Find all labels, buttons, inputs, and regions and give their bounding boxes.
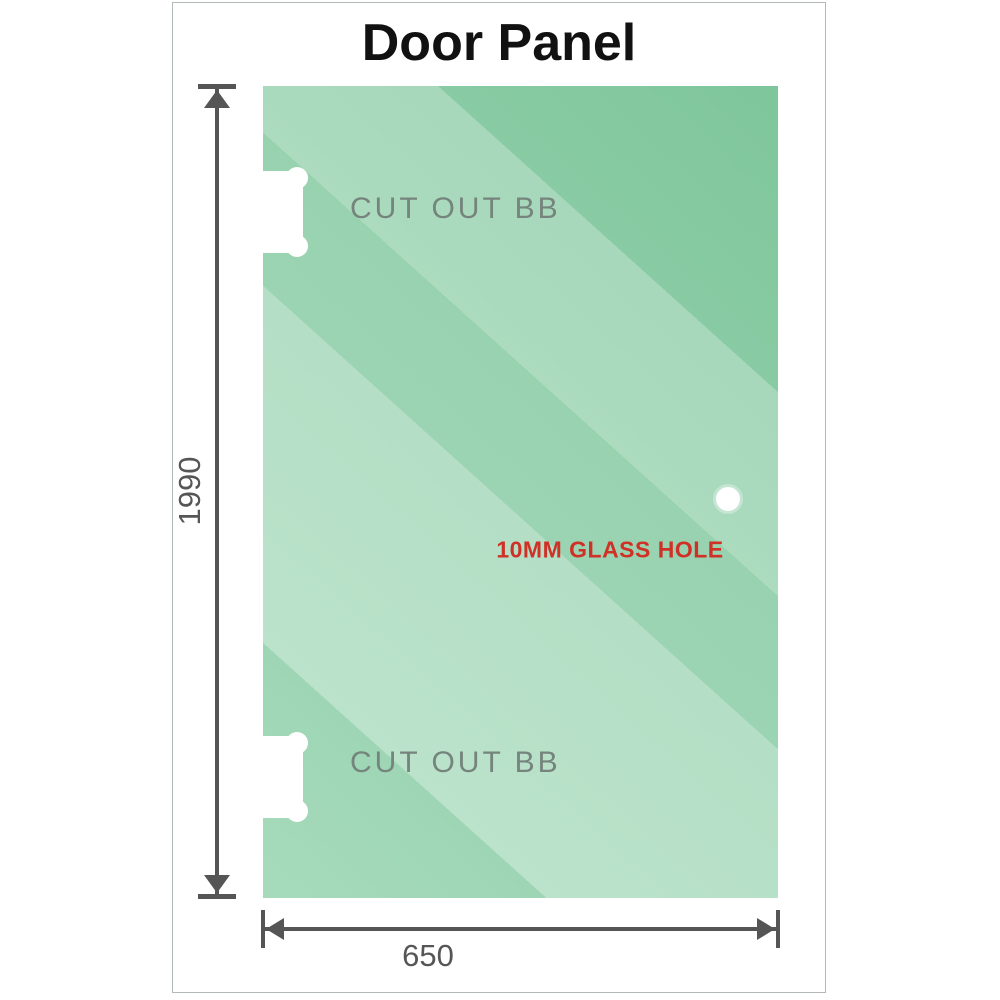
hinge-cutout-bottom [261, 736, 303, 818]
height-dimension-label: 1990 [172, 457, 208, 526]
glass-hole-icon [716, 487, 740, 511]
cutout-bump-icon [286, 732, 308, 754]
width-dimension-line [263, 927, 778, 931]
arrow-up-icon [204, 90, 230, 108]
cutout-label-bottom: CUT OUT BB [350, 746, 561, 780]
diagram-card: Door Panel CUT OUT BB CUT OUT BB 10MM GL… [172, 2, 826, 993]
cutout-bump-icon [286, 800, 308, 822]
hinge-cutout-top [261, 171, 303, 253]
width-dimension-label: 650 [402, 938, 454, 974]
cutout-label-top: CUT OUT BB [350, 192, 561, 226]
cutout-bump-icon [286, 167, 308, 189]
glass-panel: CUT OUT BB CUT OUT BB 10MM GLASS HOLE [263, 86, 778, 898]
diagram-title: Door Panel [173, 13, 825, 73]
glass-hole-label: 10MM GLASS HOLE [496, 537, 723, 564]
arrow-down-icon [204, 875, 230, 893]
arrow-right-icon [757, 918, 775, 940]
arrow-left-icon [266, 918, 284, 940]
cutout-bump-icon [286, 235, 308, 257]
height-dimension-line [215, 86, 219, 898]
